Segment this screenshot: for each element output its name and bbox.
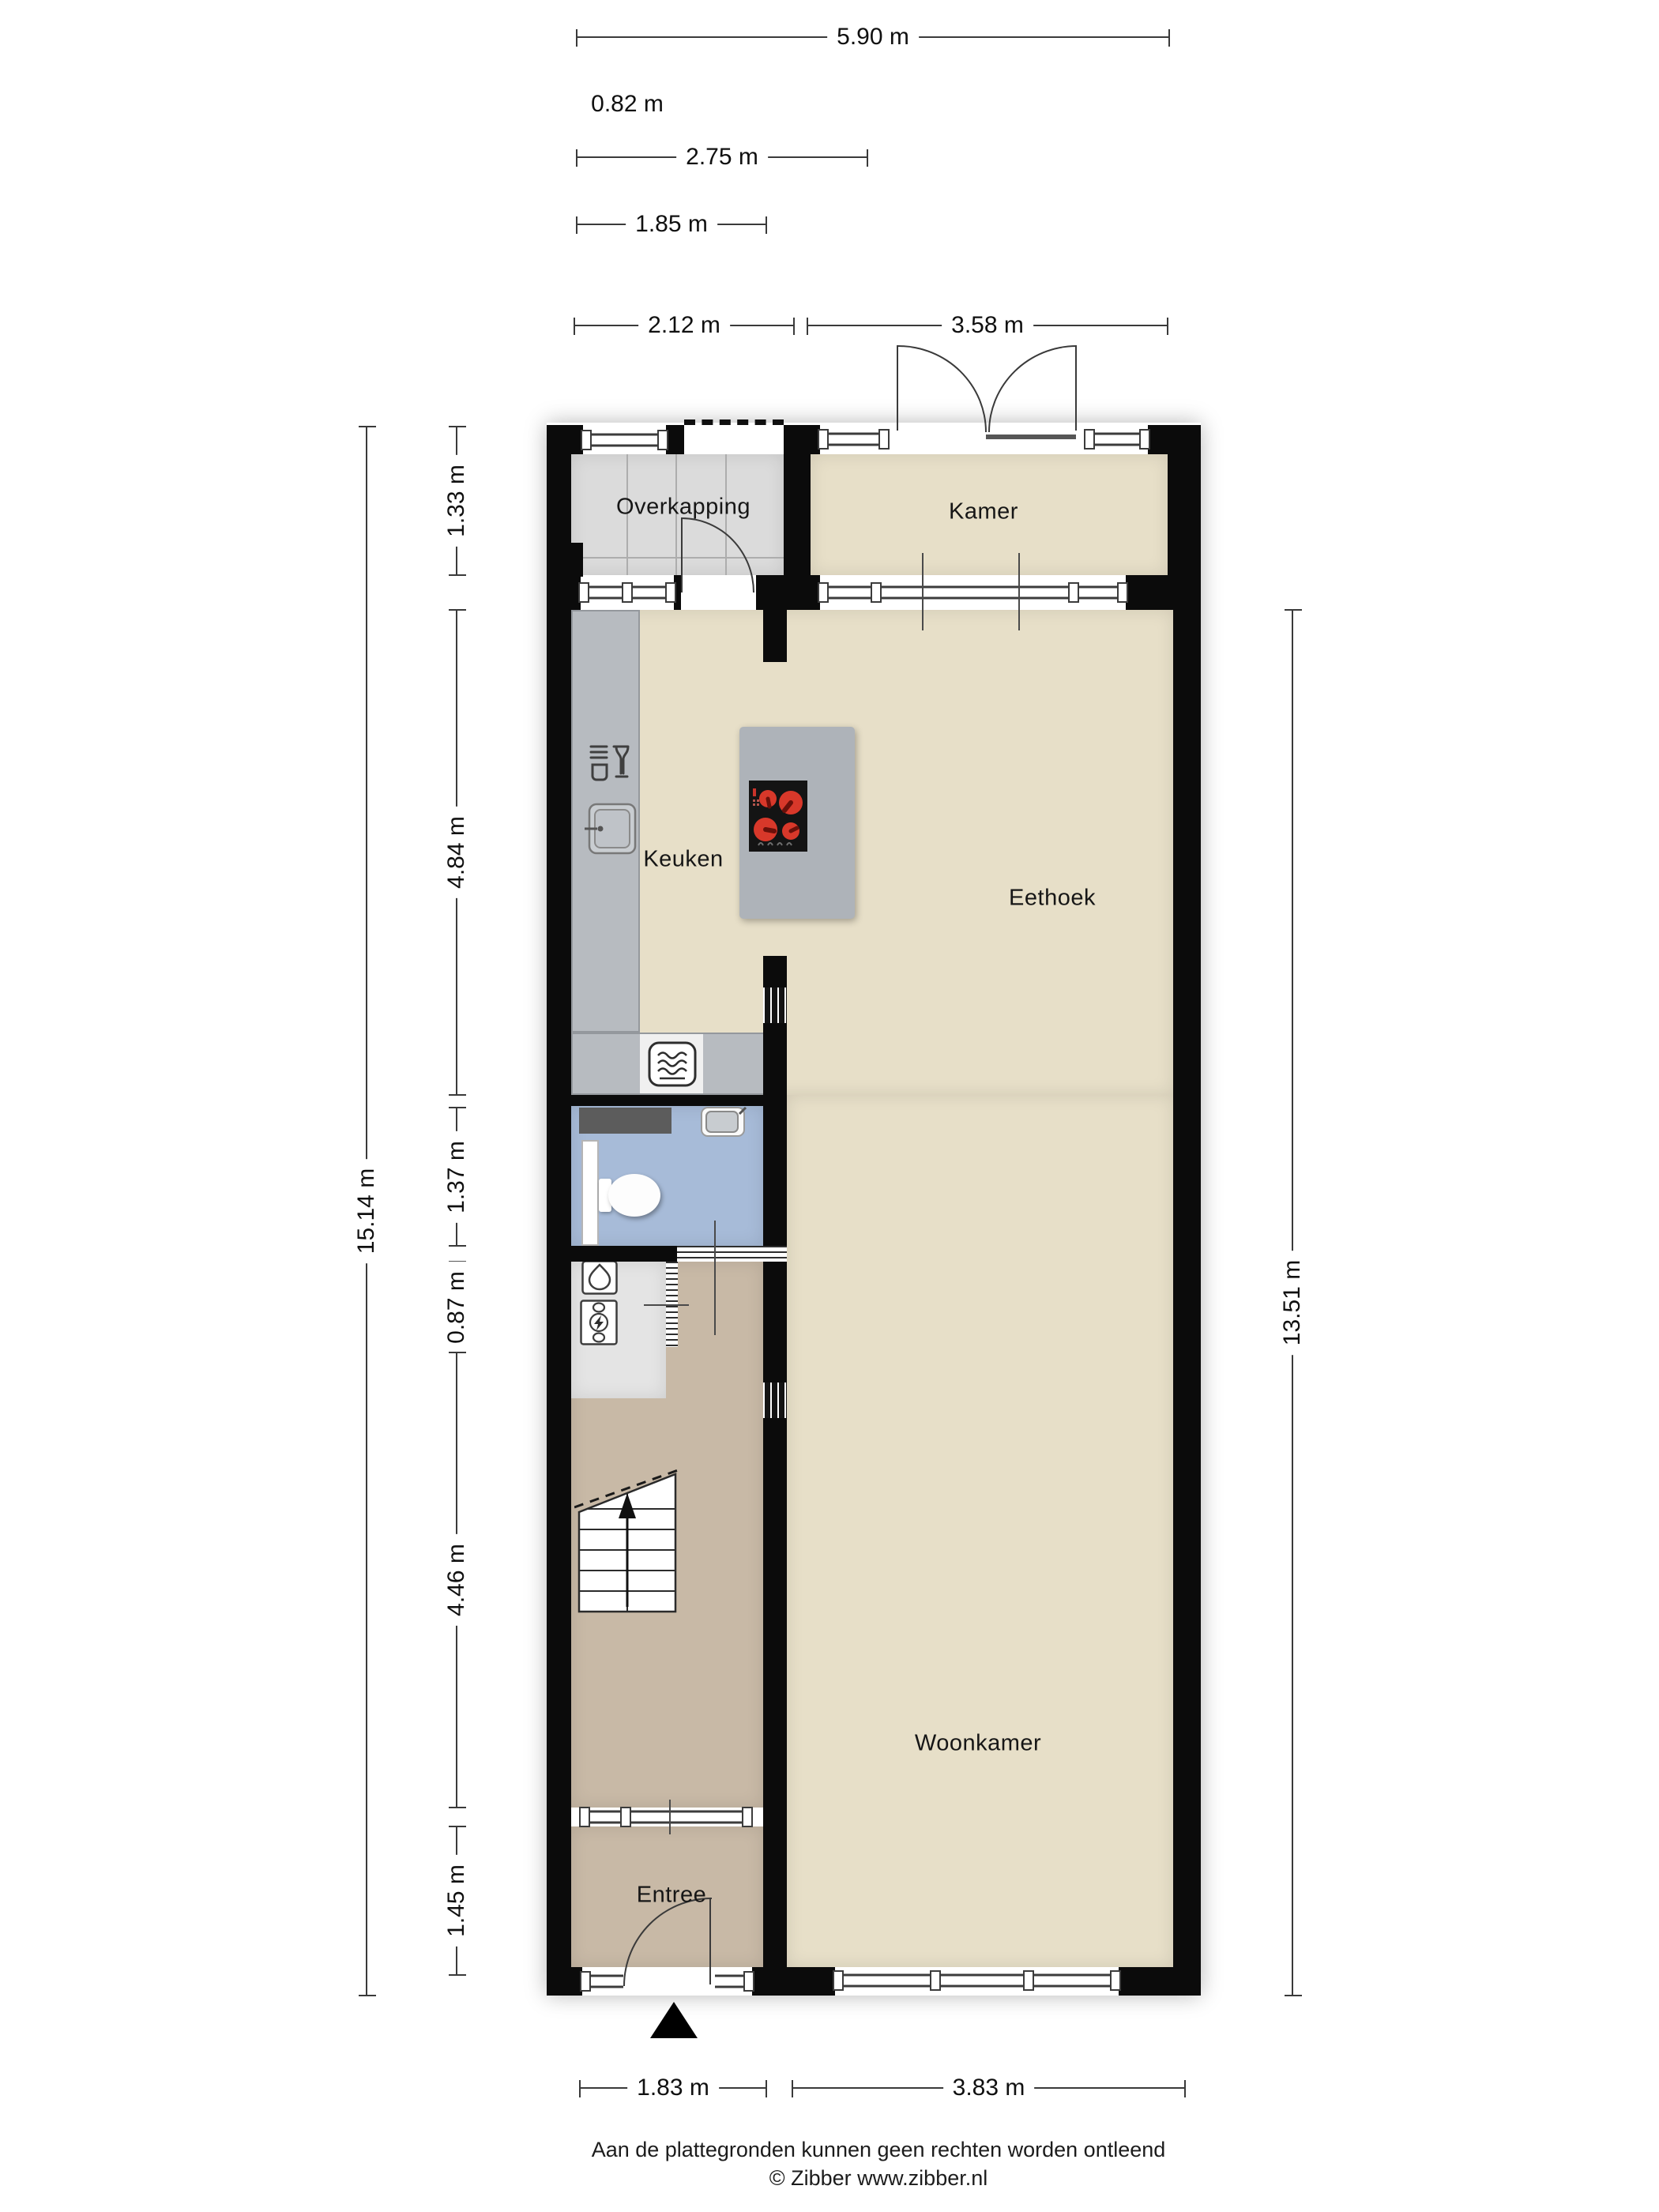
dim-label: 13.51 m [1279, 1251, 1306, 1355]
window-glass [835, 1974, 1119, 1988]
window-mullion [930, 1970, 941, 1991]
label-kamer: Kamer [949, 499, 1018, 525]
door-threshold-line [986, 434, 1076, 439]
window-mullion [1117, 582, 1128, 603]
window-glass [820, 433, 887, 446]
toilet-door-leaf [581, 1140, 599, 1246]
cooktop-icon [749, 781, 807, 852]
window-glass [820, 586, 1126, 600]
label-overkapping: Overkapping [616, 495, 750, 521]
window-mullion [581, 430, 592, 450]
wall-toilet-south [547, 1246, 677, 1262]
window-mullion [580, 1971, 591, 1992]
opening-mark [1018, 553, 1020, 630]
dim-1-45: 1.45 m [456, 1826, 457, 1975]
window-mullion [1139, 429, 1150, 450]
entrance-arrow-icon [650, 2002, 698, 2038]
window-mullion [818, 582, 829, 603]
opening-mark [669, 1800, 671, 1834]
electric-meter-icon [580, 1300, 618, 1345]
door-swing-kamer-left [898, 345, 987, 432]
window-mullion [743, 1971, 754, 1992]
window-entree-2 [715, 1970, 752, 1992]
wall-top-piece [666, 425, 684, 454]
dim-label: 5.90 m [827, 24, 919, 51]
window-mullion [833, 1970, 844, 1991]
window-mullion [1110, 1970, 1121, 1991]
sliding-door-keuken [763, 987, 787, 1023]
dim-label: 3.83 m [943, 2075, 1035, 2101]
dim-label: 2.75 m [676, 144, 768, 171]
wall-stub-upper [763, 610, 787, 662]
wall-nw-corner [547, 425, 583, 454]
microwave-icon [648, 1041, 697, 1087]
dim-label: 0.87 m [443, 1262, 470, 1353]
door-swing-kamer-right [988, 345, 1077, 432]
kitchen-sink-icon [583, 801, 638, 856]
opening-mark [714, 1221, 716, 1335]
wall-east [1173, 610, 1201, 1996]
wall-stub-lower-b [763, 1023, 787, 1095]
window-divider [581, 1810, 750, 1824]
dim-label: 4.84 m [443, 807, 470, 898]
window-mullion [665, 582, 676, 603]
label-woonkamer: Woonkamer [915, 1731, 1041, 1757]
window-glass [583, 433, 666, 446]
dishwasher-icon [588, 741, 632, 785]
dim-1-83: 1.83 m [580, 2087, 766, 2089]
window-mullion [1023, 1970, 1034, 1991]
window-mullion [622, 582, 633, 603]
dim-4-84: 4.84 m [456, 610, 457, 1095]
window-mullion [742, 1807, 753, 1827]
toilet-bowl-icon [608, 1174, 660, 1217]
deck-line [571, 557, 784, 559]
toilet-cabinet [579, 1108, 671, 1134]
wall-toilet-east [763, 1106, 787, 1246]
window-woonkamer-south [835, 1969, 1119, 1992]
label-keuken: Keuken [643, 847, 723, 873]
wall-south-b [752, 1967, 835, 1996]
window-mullion [578, 582, 589, 603]
dim-label: 1.33 m [443, 455, 470, 547]
dim-2-75: 2.75 m [577, 156, 867, 158]
dim-2-12: 2.12 m [574, 325, 794, 326]
dim-1-85: 1.85 m [577, 224, 766, 225]
label-eethoek: Eethoek [1009, 886, 1096, 912]
dim-3-83: 3.83 m [792, 2087, 1185, 2089]
wall-row12-corner [1126, 575, 1201, 610]
wall-hal-east-a [763, 1246, 787, 1382]
dim-label: 15.14 m [353, 1159, 380, 1263]
overkapping-open-edge [684, 419, 784, 425]
dim-1-37: 1.37 m [456, 1108, 457, 1246]
wall-south-c [1119, 1967, 1201, 1996]
window-overkapping-north [583, 427, 666, 453]
boiler-icon [581, 1260, 618, 1295]
window-mullion [878, 429, 890, 450]
dim-15-14: 15.14 m [366, 427, 367, 1996]
window-mullion [657, 430, 668, 450]
wall-row12-c [756, 575, 811, 610]
toilet-threshold [677, 1246, 787, 1262]
wall-toilet-north [571, 1095, 787, 1106]
window-kamer-north-1 [820, 428, 887, 450]
wall-stub-lower-a [763, 956, 787, 987]
dim-label: 1.45 m [443, 1855, 470, 1947]
floor-woonkamer [787, 1095, 1173, 1967]
window-kamer-south [820, 578, 1126, 607]
window-mullion [818, 429, 829, 450]
dim-1-33: 1.33 m [456, 427, 457, 575]
sliding-door-hal [763, 1382, 787, 1418]
dim-label: 2.12 m [638, 312, 730, 339]
opening-mark [644, 1304, 689, 1306]
dim-label: 4.46 m [443, 1534, 470, 1626]
dim-13-51: 13.51 m [1292, 610, 1293, 1996]
wall-west [547, 425, 571, 1996]
window-kamer-north-2 [1086, 428, 1148, 450]
window-mullion [579, 1807, 590, 1827]
opening-mark [922, 553, 924, 630]
window-entree-1 [582, 1970, 623, 1992]
dim-label: 1.37 m [443, 1131, 470, 1223]
window-glass [581, 1811, 750, 1824]
dim-0-82: 0.82 m [585, 91, 670, 118]
floor-plan: Overkapping Kamer Keuken Eethoek Woonkam… [0, 0, 1659, 2212]
dim-label: 1.83 m [627, 2075, 719, 2101]
window-mullion [1068, 582, 1079, 603]
label-entree: Entree [637, 1883, 706, 1909]
window-mullion [1084, 429, 1095, 450]
wall-hal-east-b [763, 1418, 787, 1996]
window-mullion [620, 1807, 631, 1827]
window-overkapping-south [581, 578, 674, 607]
disclaimer-text: Aan de plattegronden kunnen geen rechten… [88, 2138, 1659, 2162]
dim-label: 1.85 m [626, 211, 717, 238]
wall-west-notch [547, 543, 583, 577]
dim-label: 3.58 m [942, 312, 1033, 339]
dim-0-87: 0.87 m [456, 1262, 457, 1352]
dim-4-46: 4.46 m [456, 1352, 457, 1808]
credit-text: © Zibber www.zibber.nl [88, 2166, 1659, 2191]
toilet-basin-icon [700, 1106, 747, 1138]
dim-3-58: 3.58 m [807, 325, 1168, 326]
dim-5-90: 5.90 m [577, 36, 1169, 38]
wall-south-a [547, 1967, 582, 1996]
stairs-icon [574, 1466, 680, 1618]
window-mullion [871, 582, 882, 603]
